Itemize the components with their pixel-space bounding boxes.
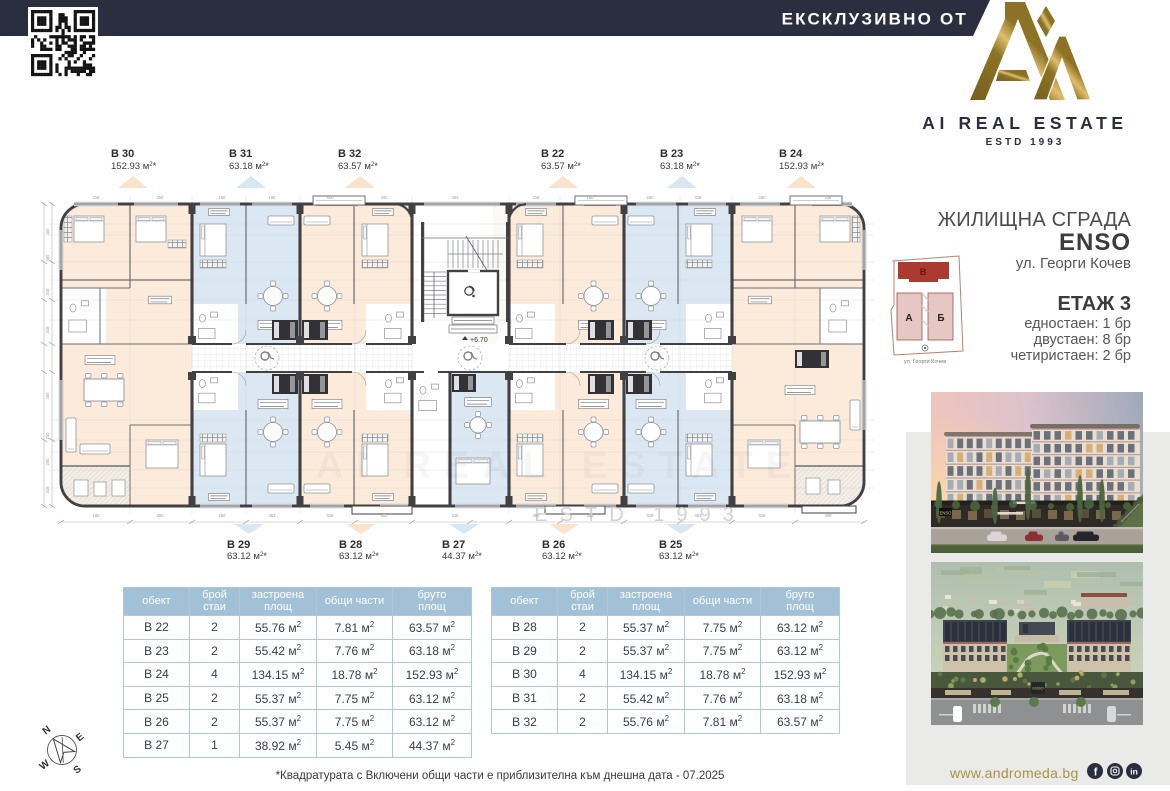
svg-text:453: 453 <box>695 513 703 518</box>
svg-text:B 24: B 24 <box>779 148 803 160</box>
svg-text:S: S <box>72 764 84 777</box>
svg-text:453: 453 <box>452 195 460 200</box>
svg-text:318: 318 <box>327 513 335 518</box>
svg-text:f: f <box>1094 766 1098 778</box>
svg-text:400: 400 <box>45 228 50 236</box>
svg-text:Б: Б <box>937 313 944 324</box>
svg-text:318: 318 <box>45 486 50 494</box>
svg-text:B 25: B 25 <box>659 539 682 551</box>
svg-text:63.57 м2*: 63.57 м2* <box>541 161 581 172</box>
svg-text:ESTD 1993: ESTD 1993 <box>986 137 1065 148</box>
svg-text:318: 318 <box>45 326 50 334</box>
svg-text:B 31: B 31 <box>229 148 252 160</box>
svg-text:ENSO: ENSO <box>940 510 953 515</box>
svg-text:453: 453 <box>381 513 389 518</box>
svg-text:63.18 м2*: 63.18 м2* <box>660 161 700 172</box>
svg-text:in: in <box>1130 767 1138 777</box>
svg-text:250: 250 <box>45 432 50 440</box>
svg-text:250: 250 <box>45 458 50 466</box>
svg-text:63.18 м2*: 63.18 м2* <box>229 161 269 172</box>
svg-text:B 27: B 27 <box>442 539 465 551</box>
svg-text:N: N <box>41 724 53 737</box>
svg-text:63.12 м2*: 63.12 м2* <box>227 551 267 562</box>
svg-text:B 32: B 32 <box>338 148 361 160</box>
svg-text:63.12 м2*: 63.12 м2* <box>339 551 379 562</box>
svg-text:B 23: B 23 <box>660 148 683 160</box>
svg-text:AI REAL ESTATE: AI REAL ESTATE <box>922 113 1127 133</box>
svg-text:318: 318 <box>695 195 703 200</box>
svg-text:ул. Георги Кочев: ул. Георги Кочев <box>904 359 946 365</box>
svg-text:63.12 м2*: 63.12 м2* <box>542 551 582 562</box>
svg-text:453: 453 <box>587 513 595 518</box>
svg-text:400: 400 <box>45 254 50 262</box>
svg-text:400: 400 <box>381 195 389 200</box>
svg-text:ESTD 1993: ESTD 1993 <box>534 504 745 526</box>
svg-text:B 28: B 28 <box>339 539 362 551</box>
svg-text:152.93 м2*: 152.93 м2* <box>779 161 825 172</box>
svg-text:400: 400 <box>327 195 335 200</box>
svg-text:400: 400 <box>45 392 50 400</box>
svg-text:318: 318 <box>452 513 460 518</box>
svg-text:160: 160 <box>219 195 227 200</box>
svg-text:В: В <box>920 267 927 278</box>
svg-text:250: 250 <box>759 195 767 200</box>
svg-text:W: W <box>38 758 53 773</box>
svg-text:B 22: B 22 <box>541 148 564 160</box>
svg-text:AI REAL ESTATE: AI REAL ESTATE <box>316 445 804 487</box>
svg-text:+6.70: +6.70 <box>470 337 488 344</box>
svg-text:160: 160 <box>93 513 101 518</box>
svg-text:318: 318 <box>759 513 767 518</box>
svg-text:250: 250 <box>219 513 227 518</box>
svg-text:250: 250 <box>647 195 655 200</box>
svg-text:63.57 м2*: 63.57 м2* <box>338 161 378 172</box>
svg-text:А: А <box>905 313 912 324</box>
svg-text:318: 318 <box>825 195 833 200</box>
svg-text:63.12 м2*: 63.12 м2* <box>659 551 699 562</box>
svg-text:160: 160 <box>587 195 595 200</box>
svg-text:318: 318 <box>45 288 50 296</box>
svg-text:ENSO: ENSO <box>1032 686 1043 691</box>
svg-text:B 30: B 30 <box>111 148 134 160</box>
svg-text:318: 318 <box>93 195 101 200</box>
svg-text:B 26: B 26 <box>542 539 565 551</box>
svg-text:250: 250 <box>157 195 165 200</box>
svg-text:B 29: B 29 <box>227 539 250 551</box>
svg-text:400: 400 <box>825 513 833 518</box>
svg-text:250: 250 <box>157 513 165 518</box>
svg-text:453: 453 <box>269 513 277 518</box>
svg-text:318: 318 <box>647 513 655 518</box>
svg-text:318: 318 <box>533 195 541 200</box>
svg-text:44.37 м2*: 44.37 м2* <box>442 551 482 562</box>
svg-text:160: 160 <box>269 195 277 200</box>
svg-text:E: E <box>74 731 86 744</box>
svg-text:152.93 м2*: 152.93 м2* <box>111 161 157 172</box>
svg-text:400: 400 <box>533 513 541 518</box>
